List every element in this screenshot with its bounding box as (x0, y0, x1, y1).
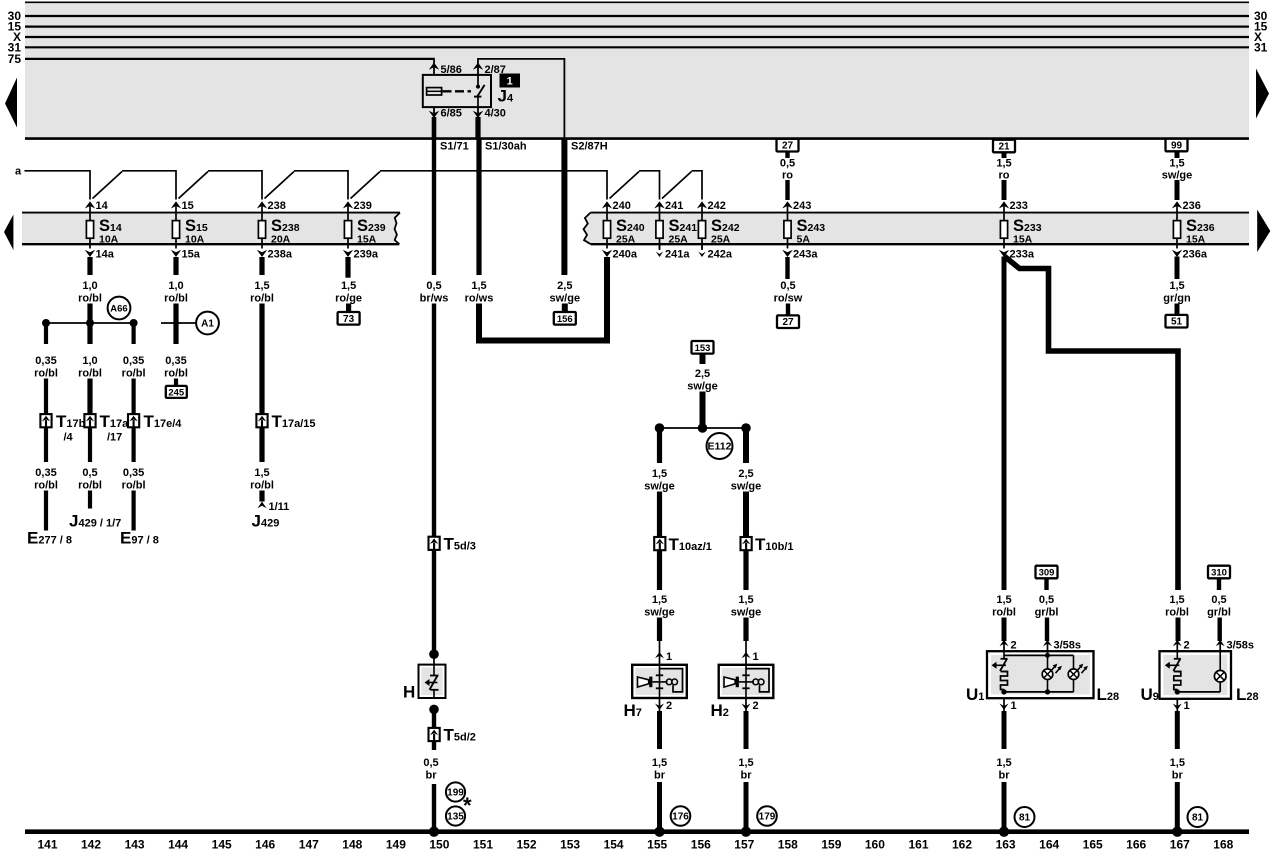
svg-text:ro/bl: ro/bl (164, 292, 188, 304)
svg-text:164: 164 (1039, 837, 1059, 851)
svg-text:14a: 14a (96, 249, 115, 261)
svg-text:142: 142 (81, 837, 101, 851)
svg-text:10A: 10A (185, 234, 205, 246)
svg-text:0,5: 0,5 (426, 280, 441, 292)
svg-text:ro/bl: ro/bl (122, 367, 146, 379)
svg-text:310: 310 (1211, 568, 1227, 579)
svg-text:144: 144 (168, 837, 188, 851)
svg-text:gr/bl: gr/bl (1207, 606, 1231, 618)
svg-text:81: 81 (1192, 812, 1204, 823)
svg-text:ro/bl: ro/bl (1165, 606, 1189, 618)
svg-text:ro/bl: ro/bl (250, 479, 274, 491)
svg-text:154: 154 (604, 837, 624, 851)
svg-text:156: 156 (691, 837, 711, 851)
svg-text:1: 1 (1011, 700, 1017, 712)
svg-text:240: 240 (613, 200, 631, 212)
svg-text:167: 167 (1170, 837, 1190, 851)
svg-text:155: 155 (647, 837, 667, 851)
svg-text:/4: /4 (64, 432, 74, 444)
svg-text:153: 153 (560, 837, 580, 851)
svg-text:sw/ge: sw/ge (644, 606, 675, 618)
svg-text:15A: 15A (1013, 234, 1033, 246)
svg-text:1,5: 1,5 (996, 594, 1011, 606)
svg-text:145: 145 (212, 837, 232, 851)
svg-text:1,5: 1,5 (1169, 158, 1184, 170)
svg-text:gr/bl: gr/bl (1035, 606, 1059, 618)
svg-text:309: 309 (1039, 568, 1055, 579)
svg-text:1,5: 1,5 (738, 594, 753, 606)
svg-text:ro/ge: ro/ge (335, 292, 362, 304)
svg-text:238: 238 (268, 200, 286, 212)
svg-text:5/86: 5/86 (441, 64, 462, 76)
svg-text:99: 99 (1171, 141, 1183, 152)
svg-text:242a: 242a (708, 249, 733, 261)
svg-text:1,5: 1,5 (652, 757, 667, 769)
svg-text:sw/ge: sw/ge (550, 292, 581, 304)
svg-text:245: 245 (168, 387, 185, 398)
svg-text:br: br (999, 769, 1011, 781)
svg-text:243: 243 (793, 200, 811, 212)
svg-text:73: 73 (343, 314, 355, 325)
svg-text:1,5: 1,5 (1170, 757, 1185, 769)
svg-text:147: 147 (299, 837, 319, 851)
svg-text:ro/bl: ro/bl (122, 479, 146, 491)
svg-text:ro/bl: ro/bl (34, 479, 58, 491)
svg-text:br: br (741, 769, 753, 781)
svg-text:1: 1 (753, 651, 759, 663)
svg-text:1: 1 (507, 76, 513, 88)
svg-text:75: 75 (8, 52, 22, 66)
svg-text:15A: 15A (1186, 234, 1206, 246)
svg-text:H: H (403, 683, 415, 702)
svg-text:ro/ws: ro/ws (465, 292, 494, 304)
svg-text:sw/ge: sw/ge (1162, 170, 1193, 182)
svg-text:0,5: 0,5 (82, 467, 97, 479)
svg-text:143: 143 (125, 837, 145, 851)
svg-text:ro: ro (999, 170, 1010, 182)
svg-text:10A: 10A (99, 234, 119, 246)
svg-text:0,5: 0,5 (780, 158, 795, 170)
svg-text:1,5: 1,5 (1169, 280, 1184, 292)
svg-text:1,5: 1,5 (254, 280, 269, 292)
svg-text:176: 176 (672, 811, 689, 822)
svg-text:236a: 236a (1183, 249, 1208, 261)
svg-text:148: 148 (342, 837, 362, 851)
svg-text:150: 150 (429, 837, 449, 851)
svg-text:a: a (15, 166, 22, 178)
svg-text:ro/sw: ro/sw (774, 292, 803, 304)
svg-text:1,0: 1,0 (82, 280, 97, 292)
svg-text:*: * (463, 793, 472, 818)
svg-text:1,5: 1,5 (996, 757, 1011, 769)
svg-text:1,5: 1,5 (254, 467, 269, 479)
svg-text:0,35: 0,35 (123, 355, 144, 367)
svg-text:0,5: 0,5 (1211, 594, 1226, 606)
svg-text:233: 233 (1010, 200, 1028, 212)
svg-text:3/58s: 3/58s (1054, 640, 1082, 652)
svg-text:168: 168 (1213, 837, 1233, 851)
svg-text:2: 2 (753, 700, 759, 712)
svg-text:br: br (654, 769, 666, 781)
svg-text:2,5: 2,5 (557, 280, 572, 292)
svg-text:146: 146 (255, 837, 275, 851)
svg-text:239a: 239a (354, 249, 379, 261)
svg-text:ro/bl: ro/bl (992, 606, 1016, 618)
svg-text:ro/bl: ro/bl (164, 367, 188, 379)
svg-text:ro/bl: ro/bl (78, 367, 102, 379)
svg-text:0,35: 0,35 (35, 355, 56, 367)
svg-text:5A: 5A (797, 234, 811, 246)
svg-text:2: 2 (666, 700, 672, 712)
svg-text:152: 152 (516, 837, 536, 851)
svg-text:15a: 15a (182, 249, 201, 261)
svg-text:81: 81 (1019, 812, 1031, 823)
svg-text:199: 199 (447, 787, 464, 798)
svg-text:27: 27 (782, 317, 794, 328)
svg-text:0,35: 0,35 (35, 467, 56, 479)
svg-text:gr/gn: gr/gn (1163, 292, 1191, 304)
svg-text:179: 179 (759, 811, 776, 822)
svg-text:S1/71: S1/71 (440, 140, 469, 152)
svg-text:27: 27 (782, 141, 794, 152)
svg-text:2,5: 2,5 (695, 368, 710, 380)
svg-text:br: br (1172, 769, 1184, 781)
svg-text:243a: 243a (793, 249, 818, 261)
svg-text:238a: 238a (268, 249, 293, 261)
svg-text:ro/bl: ro/bl (34, 367, 58, 379)
svg-text:E112: E112 (708, 440, 732, 452)
svg-text:1,5: 1,5 (471, 280, 486, 292)
svg-text:241a: 241a (665, 249, 690, 261)
svg-text:242: 242 (708, 200, 726, 212)
svg-text:0,5: 0,5 (1039, 594, 1054, 606)
svg-text:51: 51 (1171, 317, 1183, 328)
svg-text:156: 156 (557, 314, 573, 325)
svg-text:4/30: 4/30 (485, 108, 506, 120)
svg-text:1/11: 1/11 (269, 501, 290, 513)
svg-text:br/ws: br/ws (420, 292, 449, 304)
svg-text:sw/ge: sw/ge (644, 480, 675, 492)
svg-text:0,35: 0,35 (165, 355, 186, 367)
svg-text:ro/bl: ro/bl (78, 292, 102, 304)
svg-text:3/58s: 3/58s (1227, 640, 1255, 652)
svg-text:236: 236 (1183, 200, 1201, 212)
svg-text:1,0: 1,0 (168, 280, 183, 292)
svg-text:1,5: 1,5 (738, 757, 753, 769)
svg-text:162: 162 (952, 837, 972, 851)
svg-text:2: 2 (1184, 640, 1190, 652)
svg-text:ro: ro (782, 170, 793, 182)
svg-text:160: 160 (865, 837, 885, 851)
svg-text:25A: 25A (711, 234, 731, 246)
svg-text:1,5: 1,5 (341, 280, 356, 292)
svg-text:A66: A66 (110, 303, 127, 314)
svg-text:157: 157 (734, 837, 754, 851)
svg-text:1: 1 (666, 651, 672, 663)
svg-text:141: 141 (37, 837, 57, 851)
svg-text:15A: 15A (357, 234, 377, 246)
svg-text:1,0: 1,0 (82, 355, 97, 367)
svg-text:/17: /17 (107, 432, 122, 444)
svg-text:br: br (426, 769, 438, 781)
svg-text:135: 135 (447, 811, 464, 822)
svg-text:165: 165 (1083, 837, 1103, 851)
svg-text:161: 161 (908, 837, 928, 851)
svg-text:15: 15 (182, 200, 194, 212)
svg-text:151: 151 (473, 837, 493, 851)
svg-text:2,5: 2,5 (738, 468, 753, 480)
svg-text:233a: 233a (1010, 249, 1035, 261)
svg-text:sw/ge: sw/ge (687, 380, 718, 392)
svg-text:ro/bl: ro/bl (78, 479, 102, 491)
svg-text:240a: 240a (613, 249, 638, 261)
svg-text:sw/ge: sw/ge (731, 480, 762, 492)
svg-text:A1: A1 (201, 318, 214, 329)
svg-text:1: 1 (1184, 700, 1190, 712)
svg-text:1,5: 1,5 (652, 594, 667, 606)
svg-text:sw/ge: sw/ge (731, 606, 762, 618)
svg-text:6/85: 6/85 (441, 108, 462, 120)
svg-text:1,5: 1,5 (1169, 594, 1184, 606)
svg-text:S2/87H: S2/87H (571, 140, 608, 152)
svg-text:1,5: 1,5 (652, 468, 667, 480)
svg-text:166: 166 (1126, 837, 1146, 851)
svg-text:20A: 20A (271, 234, 291, 246)
svg-text:153: 153 (695, 343, 711, 354)
svg-text:31: 31 (1254, 41, 1268, 55)
svg-text:S1/30ah: S1/30ah (485, 140, 527, 152)
svg-text:163: 163 (996, 837, 1016, 851)
svg-text:21: 21 (998, 142, 1010, 153)
svg-text:0,35: 0,35 (123, 467, 144, 479)
svg-text:0,5: 0,5 (423, 757, 438, 769)
svg-text:1,5: 1,5 (996, 158, 1011, 170)
svg-text:241: 241 (665, 200, 683, 212)
svg-text:ro/bl: ro/bl (250, 292, 274, 304)
svg-text:158: 158 (778, 837, 798, 851)
svg-text:14: 14 (96, 200, 109, 212)
svg-text:0,5: 0,5 (780, 280, 795, 292)
svg-text:149: 149 (386, 837, 406, 851)
svg-text:239: 239 (354, 200, 372, 212)
svg-text:159: 159 (821, 837, 841, 851)
svg-text:25A: 25A (616, 234, 636, 246)
svg-text:2: 2 (1011, 640, 1017, 652)
svg-text:25A: 25A (669, 234, 689, 246)
